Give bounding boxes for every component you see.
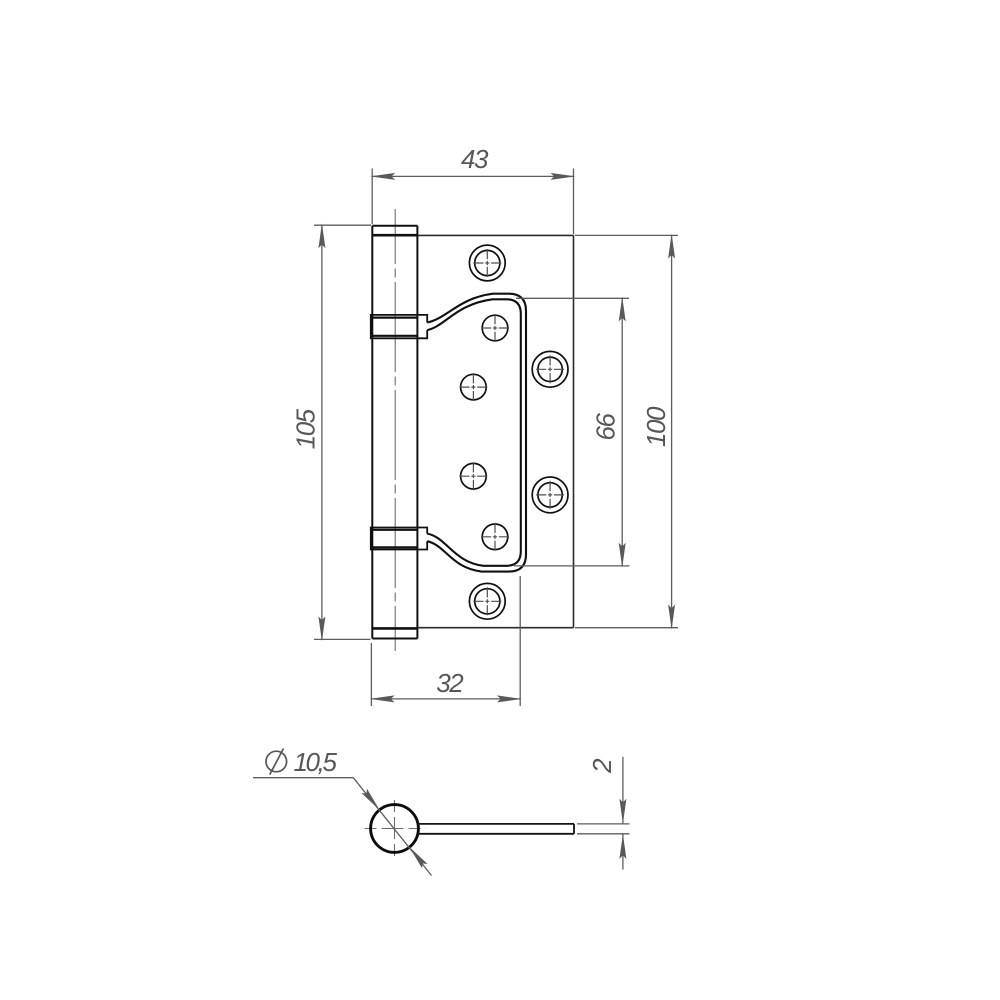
svg-text:100: 100: [641, 406, 671, 447]
svg-text:43: 43: [461, 144, 489, 174]
svg-text:10,5: 10,5: [294, 747, 338, 777]
svg-text:2: 2: [587, 758, 617, 774]
svg-text:66: 66: [591, 413, 621, 441]
svg-text:105: 105: [290, 408, 320, 449]
svg-text:32: 32: [436, 668, 464, 698]
